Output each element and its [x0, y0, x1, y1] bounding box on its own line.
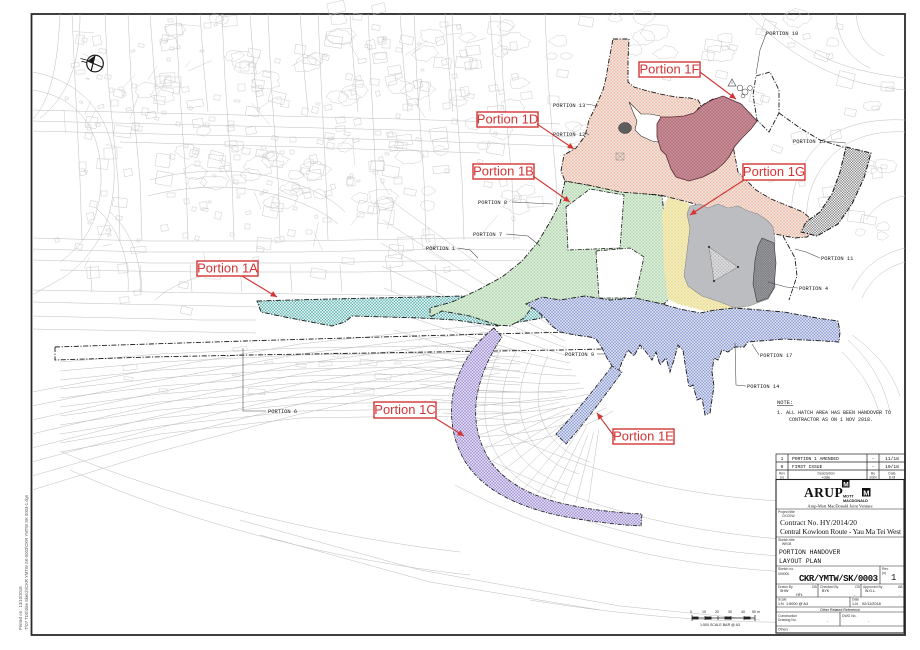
svg-text:PORTION 15: PORTION 15 — [793, 139, 825, 145]
svg-text:Sketch no.: Sketch no. — [778, 567, 794, 571]
svg-text:-: - — [781, 631, 782, 635]
svg-text:SHW: SHW — [780, 589, 789, 593]
svg-text:0: 0 — [690, 610, 692, 614]
svg-text:FIRST ISSUE: FIRST ISSUE — [792, 464, 823, 470]
svg-text:-: - — [872, 457, 875, 462]
svg-text:Central Kowloon Route - Yau Ma: Central Kowloon Route - Yau Ma Tei West — [780, 527, 902, 536]
svg-text:ARUP: ARUP — [804, 485, 843, 500]
svg-text:NOTE:: NOTE: — [777, 400, 793, 406]
svg-text:MACDONALD: MACDONALD — [843, 499, 868, 503]
svg-text:1. ALL HATCH AREA HAS BEEN HA: 1. ALL HATCH AREA HAS BEEN HANDOVER TO — [777, 410, 891, 416]
svg-text:1: 1 — [781, 456, 784, 462]
svg-text:Portion 1G: Portion 1G — [743, 164, 805, 179]
svg-text:40: 40 — [741, 610, 745, 614]
svg-text:PORTION 1: PORTION 1 — [426, 246, 455, 252]
svg-text:PORTION 11: PORTION 11 — [821, 256, 853, 262]
svg-text:CB: CB — [855, 585, 860, 589]
svg-text:D-M: D-M — [889, 476, 896, 480]
svg-text:PORTION 6: PORTION 6 — [268, 409, 297, 415]
svg-text:M: M — [863, 489, 869, 498]
svg-text:Portion 1B: Portion 1B — [473, 164, 534, 179]
svg-text:PORTION HANDOVER: PORTION HANDOVER — [779, 549, 841, 556]
svg-text:Drawing No.: Drawing No. — [778, 618, 797, 622]
svg-text:PORTION 1 AMENDED: PORTION 1 AMENDED — [792, 456, 839, 462]
svg-text:PORTION 7: PORTION 7 — [473, 232, 502, 238]
svg-text:PORTION 4: PORTION 4 — [799, 286, 828, 292]
svg-text:000000: 000000 — [778, 572, 789, 576]
svg-text:WK08: WK08 — [782, 542, 791, 546]
svg-text:PORTION 8: PORTION 8 — [478, 200, 507, 206]
svg-text:MOTT: MOTT — [843, 495, 854, 499]
svg-text:20: 20 — [715, 610, 719, 614]
svg-text:T:\07 TDS\Site Sketch\CKR YMTW: T:\07 TDS\Site Sketch\CKR YMTW SK-0003\C… — [24, 494, 29, 630]
svg-text:Portion 1C: Portion 1C — [374, 402, 435, 417]
svg-text:Portion 1E: Portion 1E — [613, 429, 674, 444]
svg-text:(n): (n) — [882, 571, 886, 575]
svg-text:DB: DB — [812, 585, 817, 589]
svg-text:50 m: 50 m — [752, 610, 760, 614]
svg-text:+date: +date — [822, 476, 831, 480]
svg-text:PORTION 13: PORTION 13 — [553, 103, 585, 109]
svg-text:PORTION 14: PORTION 14 — [747, 384, 779, 390]
svg-text:PORTION 12: PORTION 12 — [553, 132, 585, 138]
svg-text:SGN: SGN — [869, 476, 877, 480]
svg-text:(n): (n) — [780, 476, 784, 480]
svg-text:Portion 1F: Portion 1F — [640, 62, 700, 77]
svg-text:1: 1 — [891, 573, 896, 583]
svg-text:02/11/2018: 02/11/2018 — [862, 602, 881, 606]
svg-text:M: M — [843, 482, 848, 489]
svg-text:10/18: 10/18 — [885, 464, 899, 470]
svg-text:Portion 1D: Portion 1D — [477, 112, 538, 127]
svg-text:Others: Others — [778, 628, 788, 632]
svg-text:HFL: HFL — [796, 593, 803, 597]
svg-text:1:500 SCALE BAR @ A3: 1:500 SCALE BAR @ A3 — [700, 623, 740, 627]
svg-text:AB: AB — [898, 585, 903, 589]
svg-text:Printed on : 13/10/2018: Printed on : 13/10/2018 — [18, 586, 23, 630]
svg-text:LAYOUT PLAN: LAYOUT PLAN — [779, 558, 821, 565]
svg-text:10: 10 — [702, 610, 706, 614]
svg-text:CKR/YMTW/SK/0003: CKR/YMTW/SK/0003 — [799, 574, 878, 584]
svg-text:W.G.L.: W.G.L. — [865, 589, 876, 593]
svg-text:0: 0 — [781, 464, 784, 470]
svg-text:1:5000 @ A3: 1:5000 @ A3 — [786, 602, 808, 606]
svg-text:Contract No. HY/2014/20: Contract No. HY/2014/20 — [780, 518, 857, 527]
svg-text:PORTION 17: PORTION 17 — [760, 353, 792, 359]
svg-text:-: - — [872, 465, 875, 470]
svg-text:Other Related Reference: Other Related Reference — [820, 608, 860, 612]
svg-text:BYK: BYK — [822, 589, 830, 593]
svg-text:Portion 1A: Portion 1A — [197, 261, 258, 276]
svg-text:PORTION 9: PORTION 9 — [565, 352, 594, 358]
svg-text:Date: Date — [852, 598, 859, 602]
svg-text:1:N: 1:N — [778, 602, 784, 606]
svg-text:PORTION 10: PORTION 10 — [766, 31, 798, 37]
svg-text:11/18: 11/18 — [885, 456, 899, 462]
svg-text:30: 30 — [728, 610, 732, 614]
svg-text:Scale: Scale — [778, 598, 787, 602]
svg-text:CONTRACTOR AS ON 1 NOV 2018.: CONTRACTOR AS ON 1 NOV 2018. — [789, 417, 873, 423]
svg-text:DWG No.: DWG No. — [842, 614, 857, 618]
svg-text:Arup-Mott MacDonald Joint Vent: Arup-Mott MacDonald Joint Venture — [807, 504, 872, 509]
svg-text:1-N: 1-N — [852, 602, 858, 606]
